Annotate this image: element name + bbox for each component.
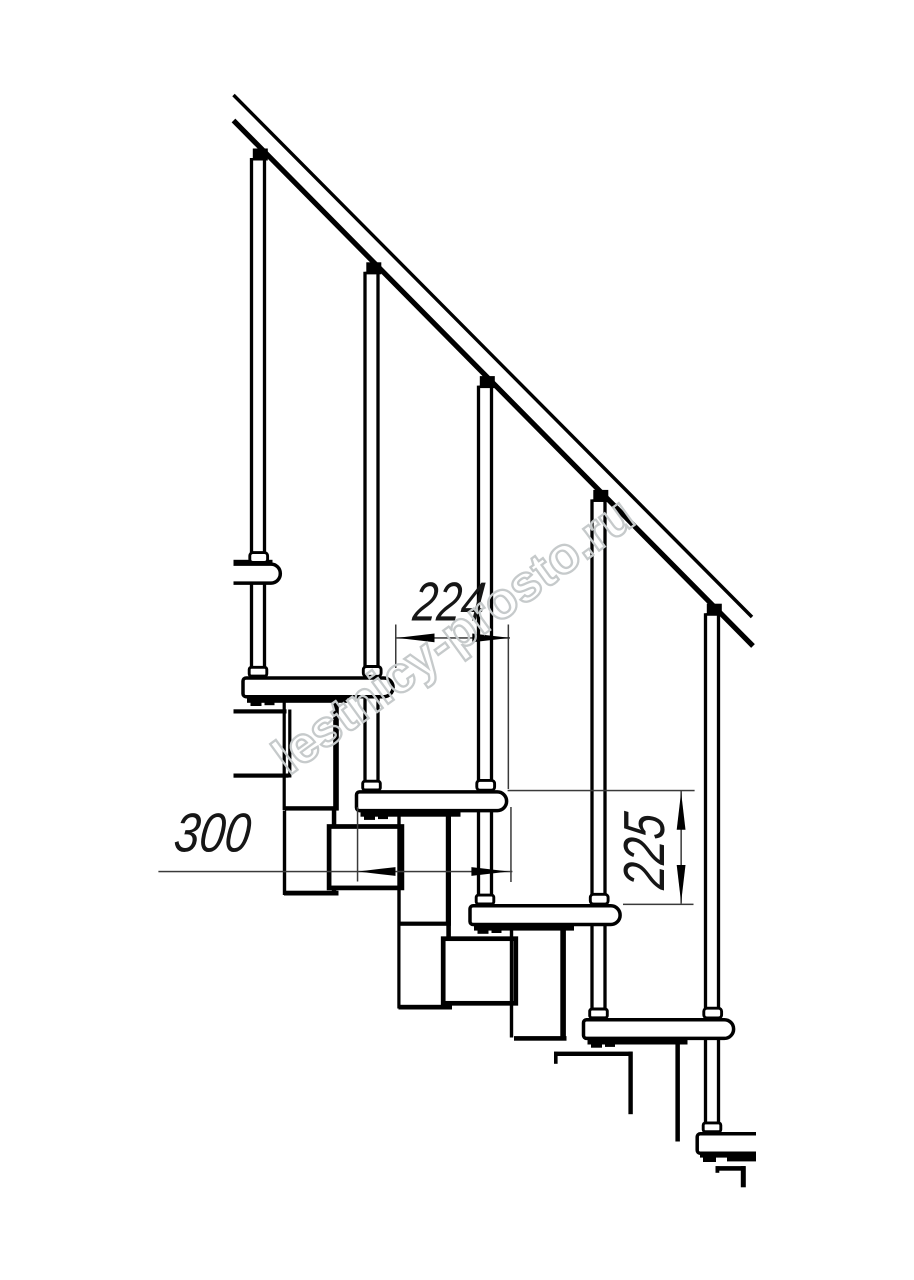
svg-text:225: 225	[613, 809, 678, 893]
svg-text:lestnicy-prosto.ru: lestnicy-prosto.ru	[262, 486, 644, 785]
svg-text:300: 300	[171, 802, 254, 864]
